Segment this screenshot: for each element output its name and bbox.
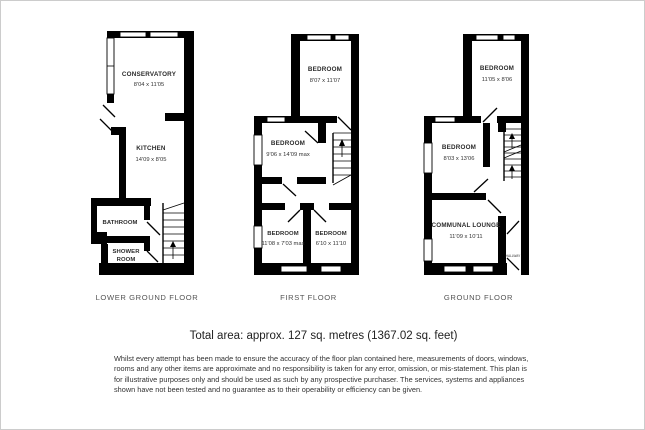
room-label-bathroom: BATHROOM bbox=[102, 220, 137, 226]
floorplan-page: CONSERVATORY 8'04 x 11'05 KITCHEN 14'09 … bbox=[0, 0, 645, 430]
room-label-conservatory: CONSERVATORY bbox=[122, 71, 177, 78]
disclaimer-line-2: rooms and any other items are approximat… bbox=[114, 364, 546, 374]
stairs-up-arrow-icon-2 bbox=[509, 165, 515, 171]
floor-label-first: FIRST FLOOR bbox=[251, 293, 366, 302]
disclaimer-line-1: Whilst every attempt has been made to en… bbox=[114, 354, 546, 364]
room-label-kitchen: KITCHEN bbox=[136, 145, 166, 152]
stairs-up-arrow-icon bbox=[170, 241, 176, 247]
room-label-bedroom-mid: BEDROOM bbox=[271, 140, 305, 147]
disclaimer-line-3: for illustrative purposes only and shoul… bbox=[114, 375, 546, 385]
room-label-bedroom-br: BEDROOM bbox=[315, 231, 346, 237]
floor-label-ground: GROUND FLOOR bbox=[421, 293, 536, 302]
walls bbox=[91, 31, 194, 275]
room-dims-kitchen: 14'09 x 8'05 bbox=[136, 157, 167, 163]
room-label-bedroom-bl: BEDROOM bbox=[267, 231, 298, 237]
room-label-lounge: COMMUNAL LOUNGE bbox=[432, 222, 501, 229]
room-label-bedroom-top: BEDROOM bbox=[480, 65, 514, 72]
floorplan-first: BEDROOM 8'07 x 11'07 BEDROOM 9'06 x 14'0… bbox=[251, 17, 366, 289]
room-dims-bedroom-bl: 11'08 x 7'03 max bbox=[261, 241, 304, 247]
room-dims-bedroom-mid: 8'03 x 13'06 bbox=[444, 156, 475, 162]
room-label-shower-2: ROOM bbox=[117, 257, 136, 263]
disclaimer-line-4: shown have not been tested and no guaran… bbox=[114, 385, 546, 395]
room-label-hallway: HALLWAY bbox=[506, 254, 522, 258]
doors bbox=[474, 108, 519, 270]
room-label-bedroom-top: BEDROOM bbox=[308, 66, 342, 73]
floor-label-lower-ground: LOWER GROUND FLOOR bbox=[87, 293, 207, 302]
room-dims-bedroom-top: 11'05 x 8'06 bbox=[482, 77, 512, 83]
room-dims-lounge: 11'09 x 10'11 bbox=[449, 234, 482, 240]
floorplan-ground: BEDROOM 11'05 x 8'06 BEDROOM 8'03 x 13'0… bbox=[421, 17, 536, 289]
room-dims-bedroom-br: 6'10 x 11'10 bbox=[316, 241, 346, 247]
total-area-text: Total area: approx. 127 sq. metres (1367… bbox=[1, 330, 645, 342]
room-dims-conservatory: 8'04 x 11'05 bbox=[134, 82, 164, 88]
stairs-up-arrow-icon bbox=[509, 133, 515, 139]
floorplan-lower-ground: CONSERVATORY 8'04 x 11'05 KITCHEN 14'09 … bbox=[87, 17, 207, 289]
room-dims-bedroom-mid: 9'06 x 14'09 max bbox=[266, 152, 310, 158]
staircase bbox=[333, 133, 351, 185]
room-dims-bedroom-top: 8'07 x 11'07 bbox=[310, 78, 340, 84]
staircase bbox=[504, 129, 521, 181]
staircase bbox=[163, 203, 184, 263]
room-label-bedroom-mid: BEDROOM bbox=[442, 144, 476, 151]
disclaimer-text: Whilst every attempt has been made to en… bbox=[114, 354, 546, 395]
room-label-shower-1: SHOWER bbox=[112, 249, 140, 255]
